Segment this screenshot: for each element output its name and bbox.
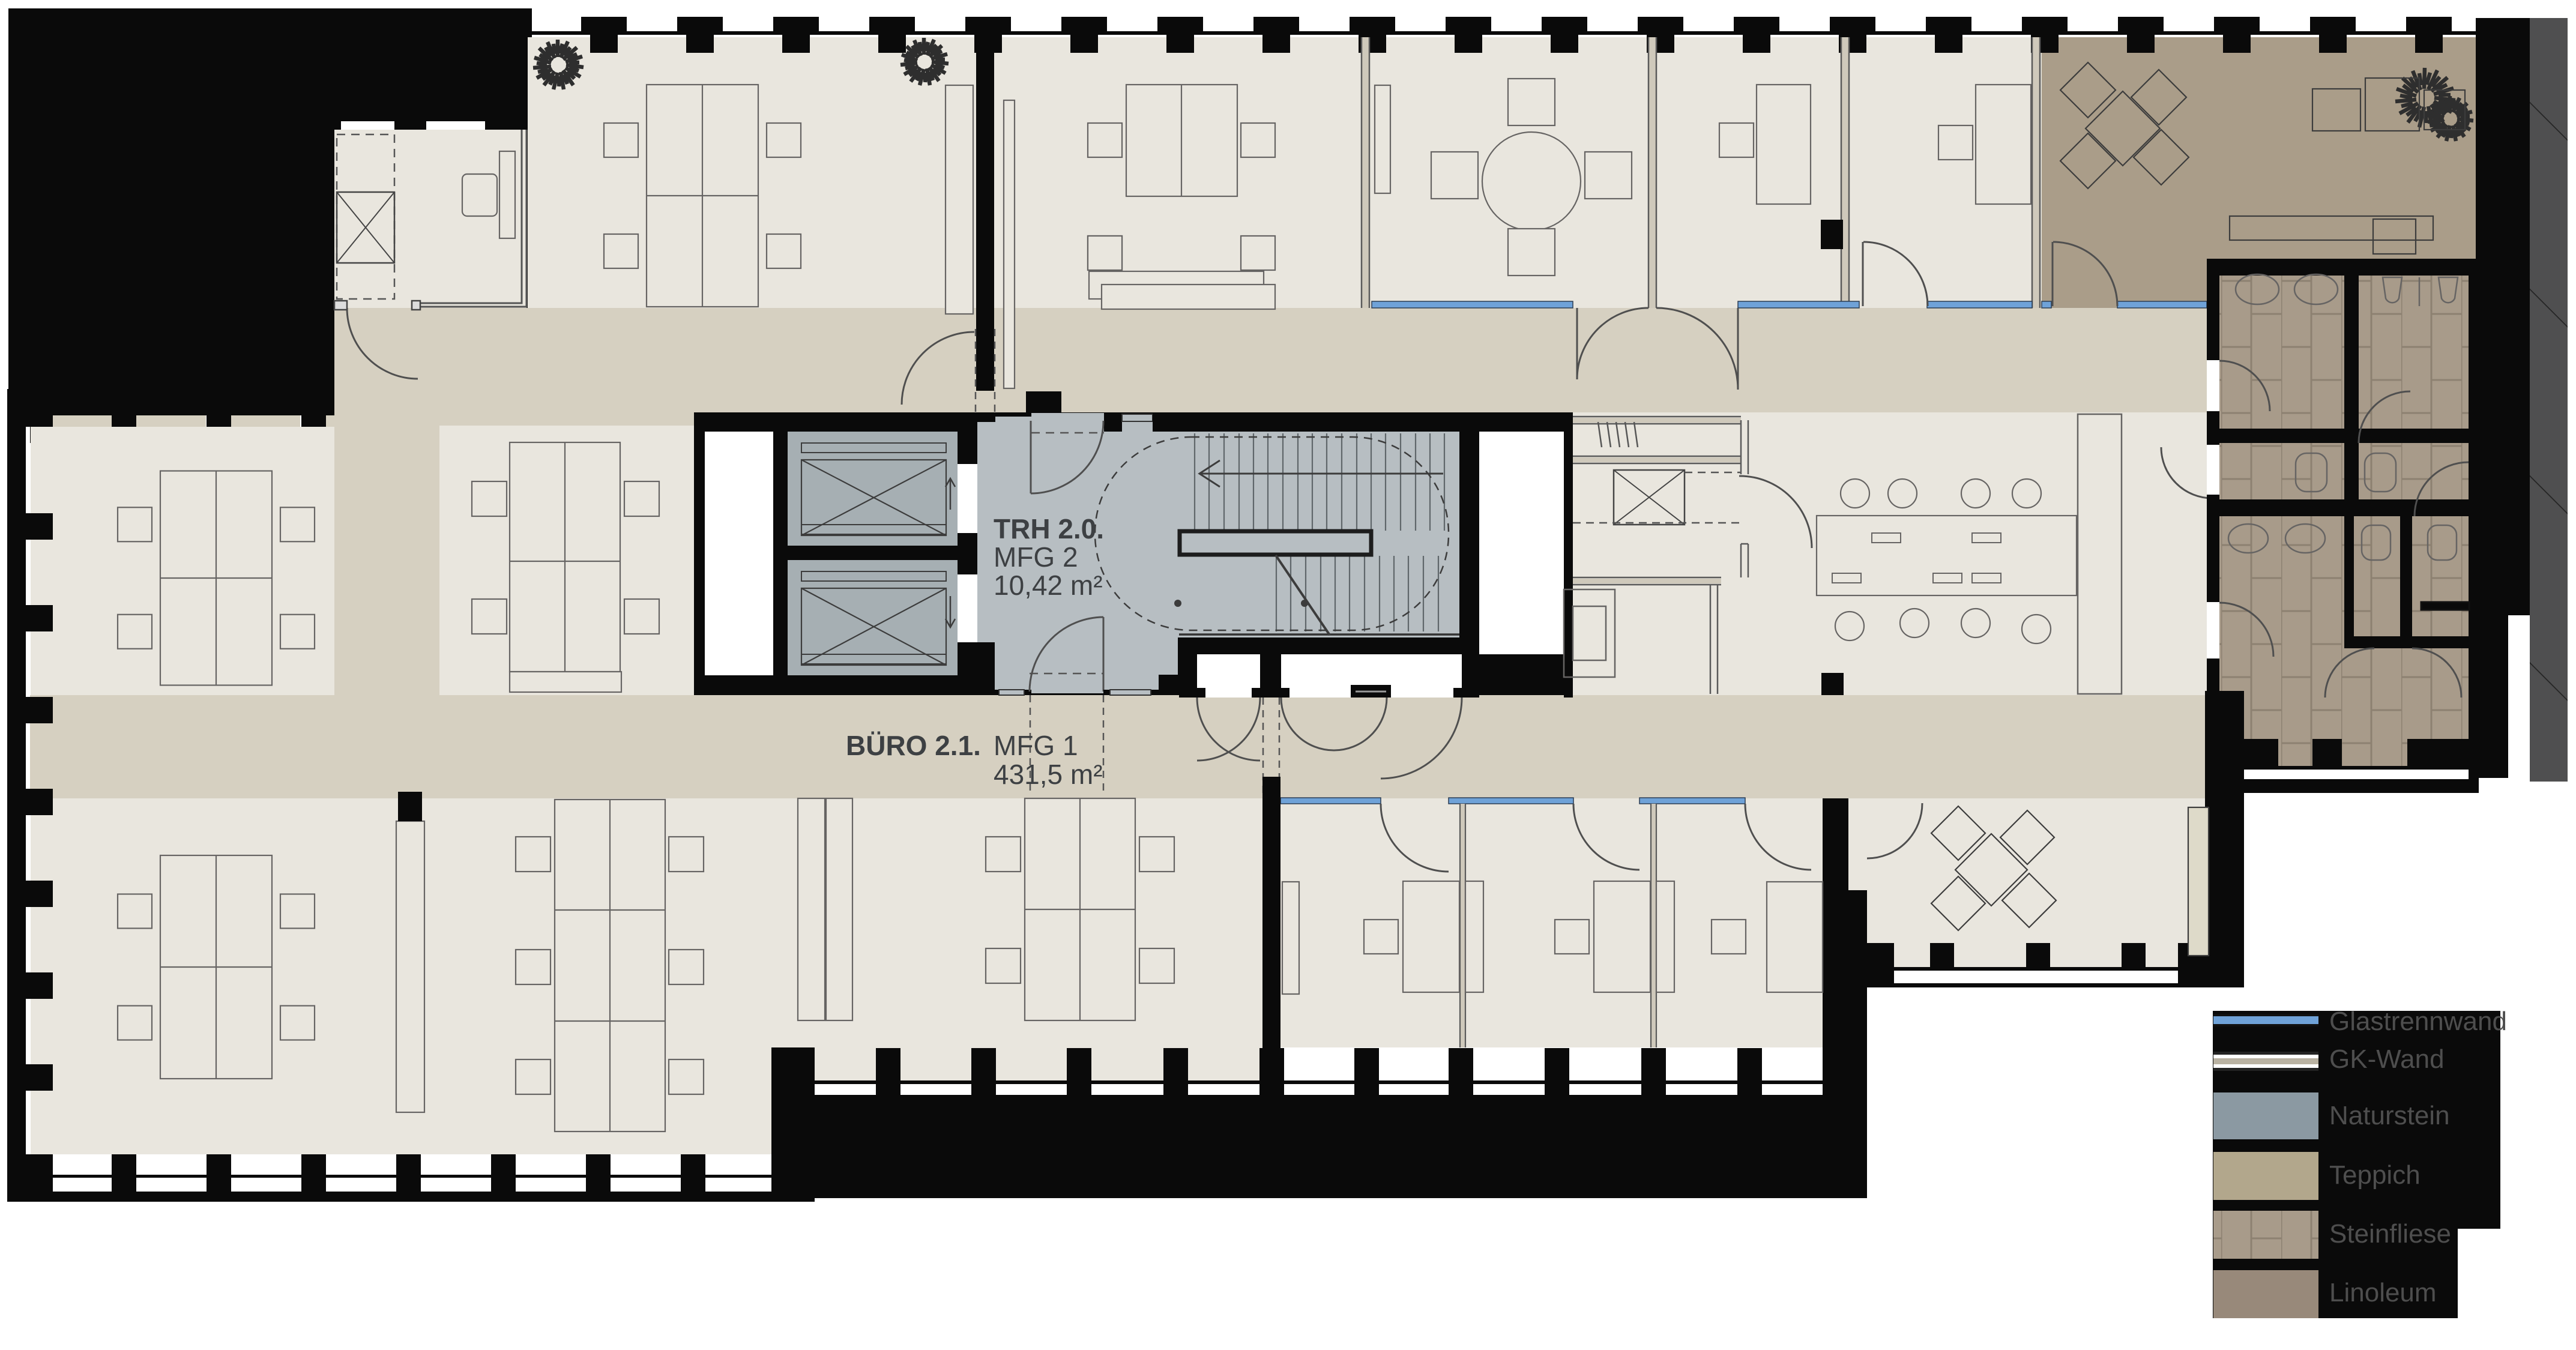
svg-text:TRH 2.0.: TRH 2.0. — [994, 513, 1104, 544]
svg-text:Naturstein: Naturstein — [2329, 1101, 2450, 1130]
svg-text:Steinfliese: Steinfliese — [2329, 1219, 2451, 1249]
svg-text:BÜRO 2.1.: BÜRO 2.1. — [846, 730, 981, 761]
svg-text:431,5 m²: 431,5 m² — [994, 759, 1103, 790]
svg-text:GK-Wand: GK-Wand — [2329, 1044, 2445, 1074]
svg-text:Glastrennwand: Glastrennwand — [2329, 1007, 2507, 1036]
svg-text:Teppich: Teppich — [2329, 1160, 2421, 1190]
svg-text:Linoleum: Linoleum — [2329, 1278, 2437, 1307]
svg-text:MFG 1: MFG 1 — [994, 730, 1078, 761]
svg-text:10,42 m²: 10,42 m² — [994, 570, 1103, 601]
svg-text:MFG 2: MFG 2 — [994, 541, 1078, 573]
